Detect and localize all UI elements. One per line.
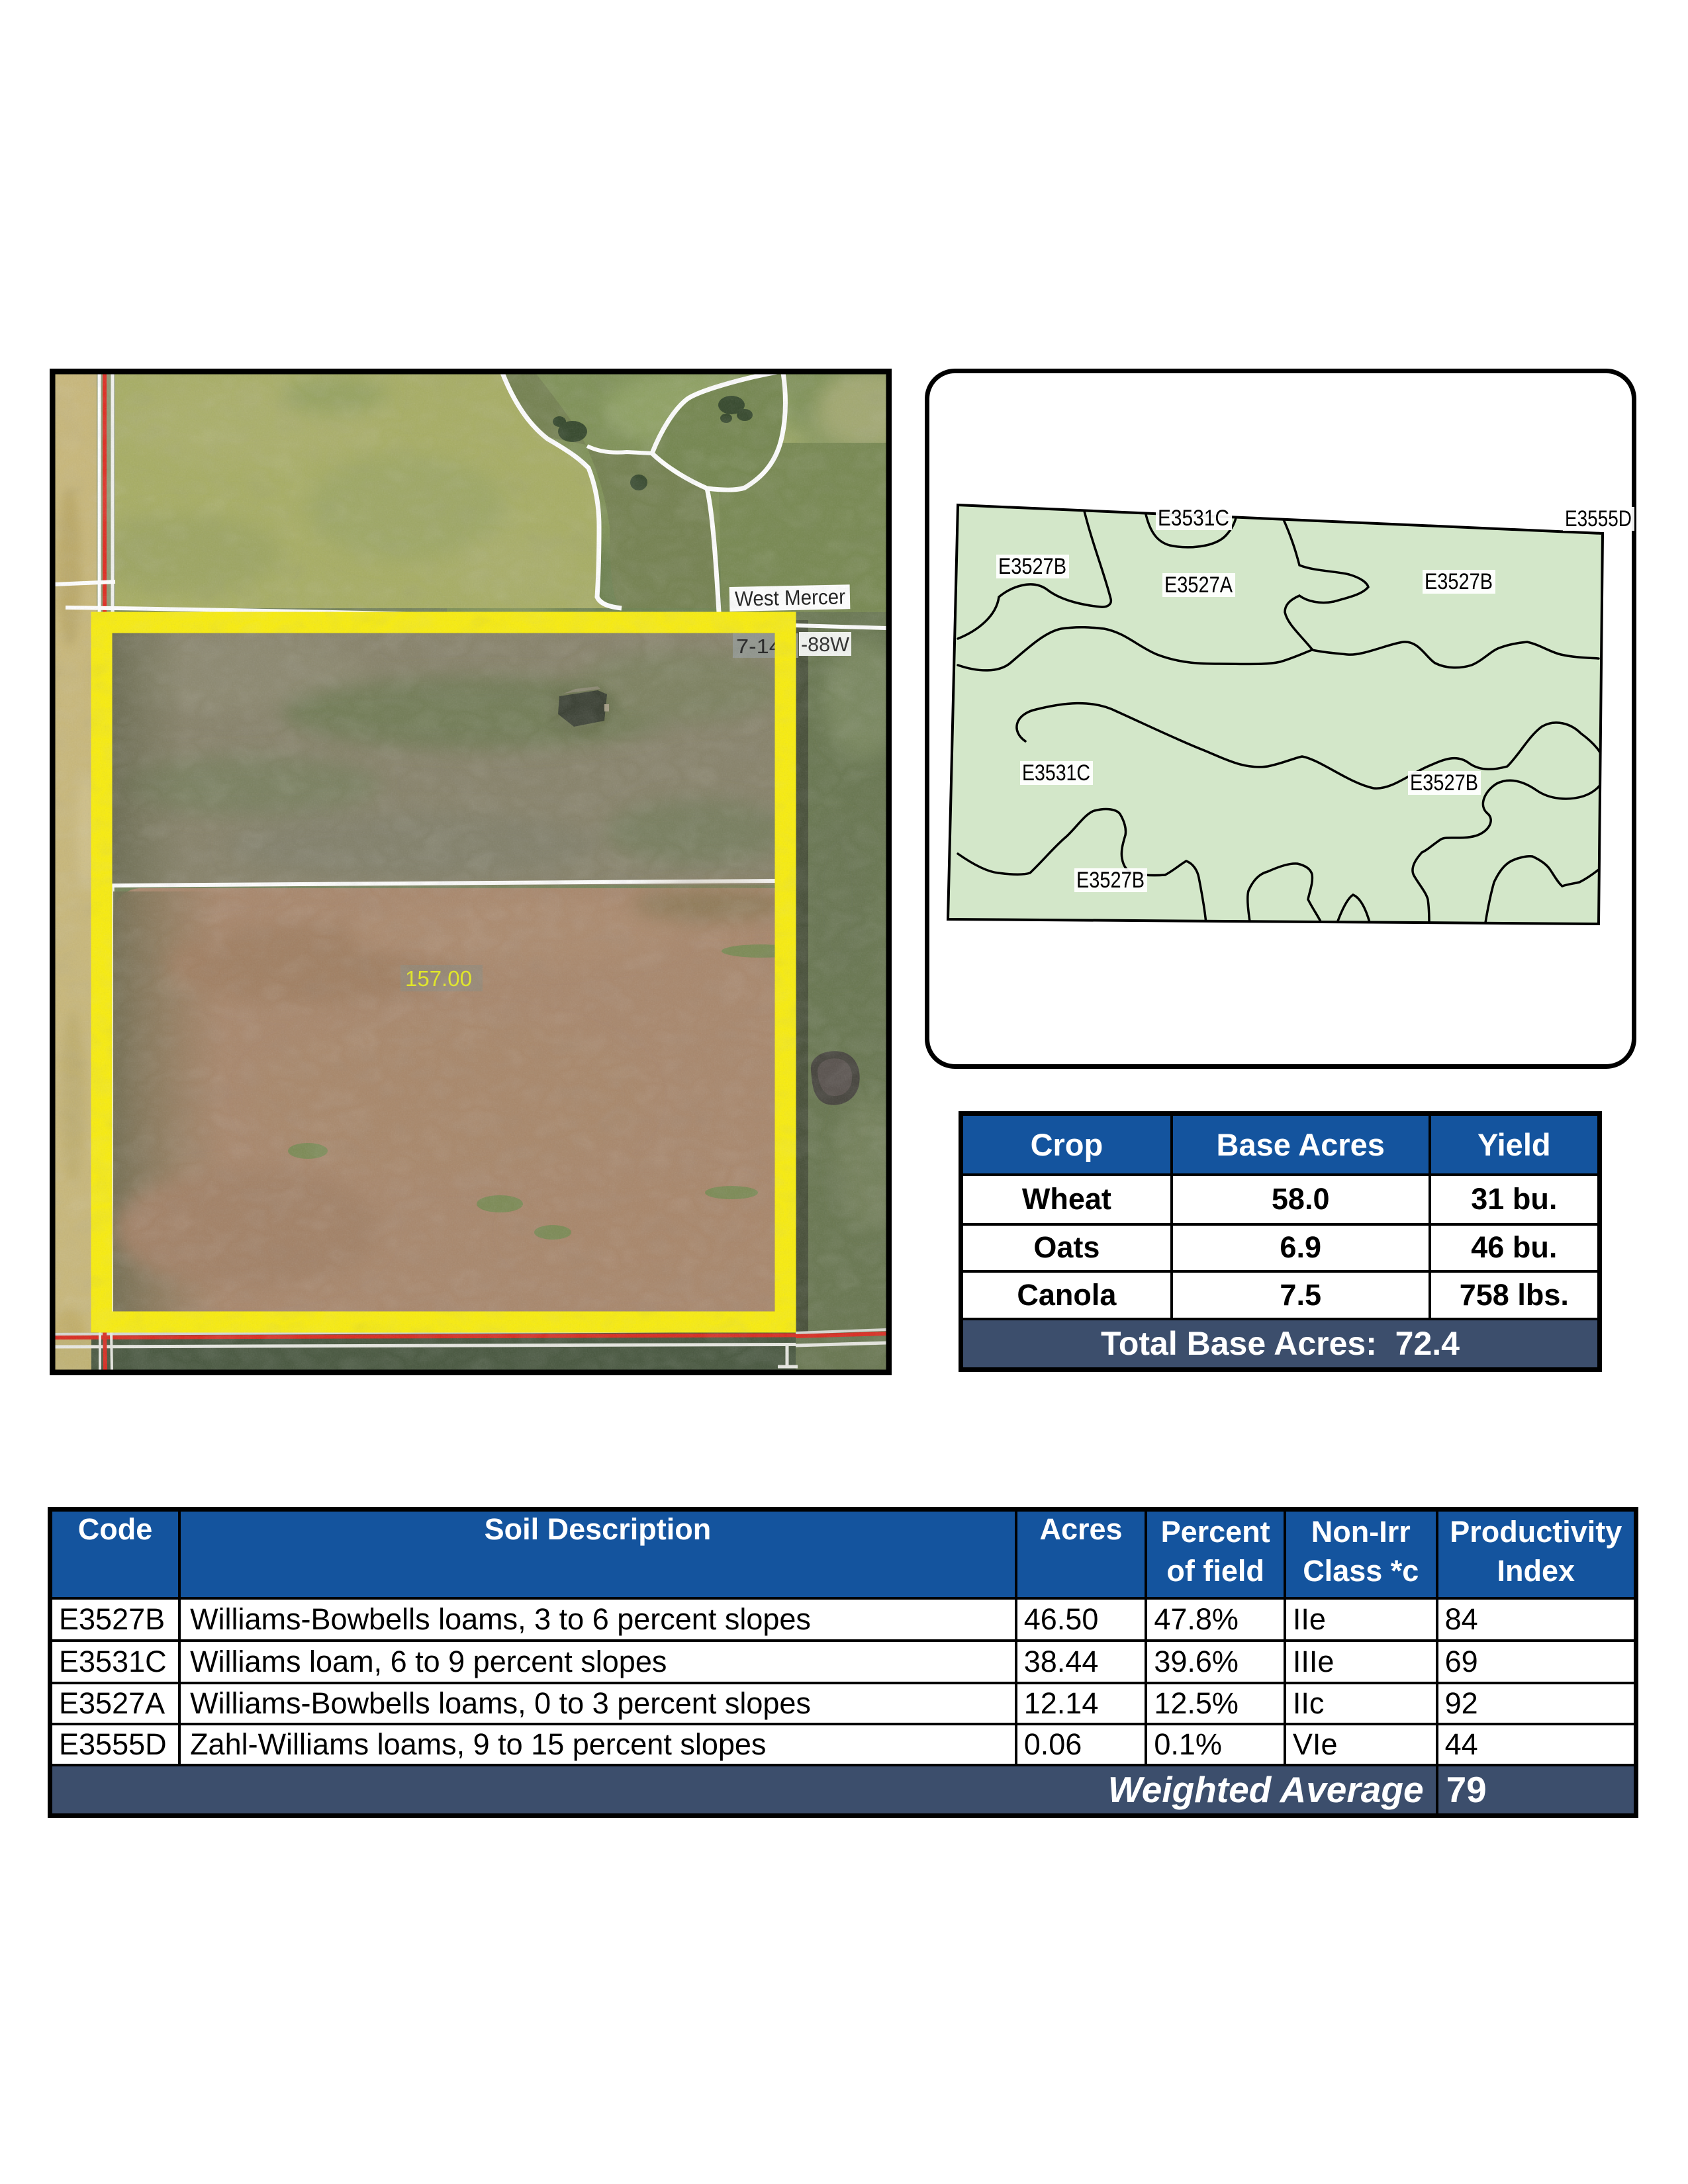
svg-text:E3527B: E3527B	[1410, 770, 1478, 796]
svg-text:E3527B: E3527B	[998, 554, 1066, 579]
svg-text:E3555D: E3555D	[1565, 506, 1632, 531]
svg-text:E3531C: E3531C	[1022, 760, 1090, 786]
svg-text:E3527B: E3527B	[1425, 569, 1493, 594]
svg-text:E3527B: E3527B	[1076, 868, 1145, 893]
svg-text:E3527A: E3527A	[1164, 572, 1233, 598]
svg-text:E3531C: E3531C	[1158, 506, 1229, 531]
